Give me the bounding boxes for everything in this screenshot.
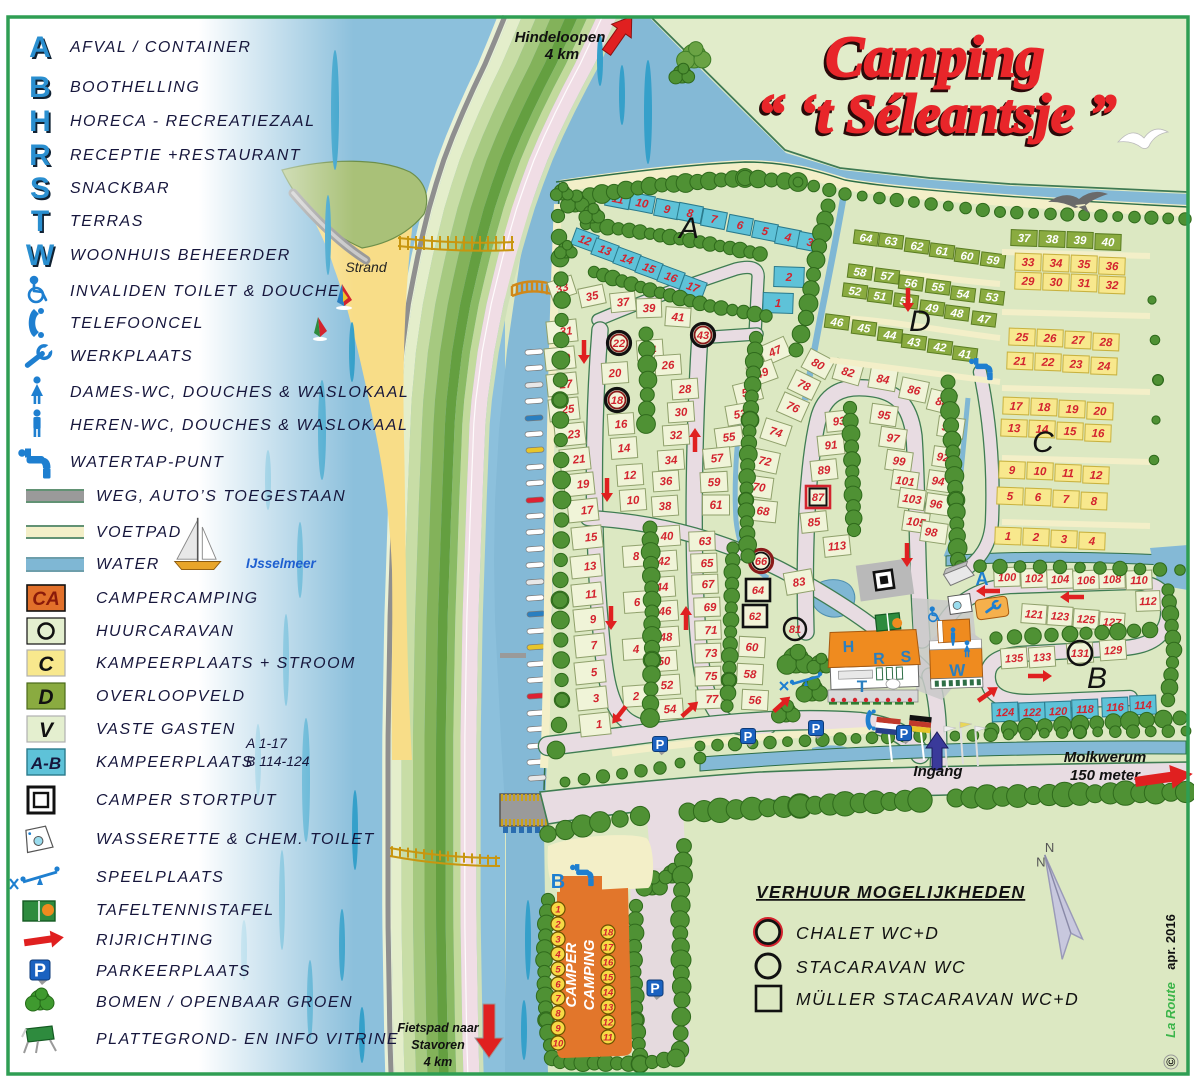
svg-text:29: 29	[1020, 276, 1035, 288]
svg-text:N: N	[1045, 840, 1054, 855]
svg-text:WASSERETTE & CHEM. TOILET: WASSERETTE & CHEM. TOILET	[96, 831, 375, 848]
svg-text:106: 106	[1077, 575, 1097, 588]
svg-text:4: 4	[554, 950, 561, 961]
svg-text:WEG, AUTO’S TOEGESTAAN: WEG, AUTO’S TOEGESTAAN	[96, 488, 346, 505]
svg-text:P: P	[812, 721, 821, 736]
svg-text:135: 135	[1004, 652, 1024, 665]
svg-text:89: 89	[817, 464, 832, 477]
svg-text:PLATTEGROND- EN INFO VITRINE: PLATTEGROND- EN INFO VITRINE	[96, 1031, 399, 1048]
svg-text:PARKEERPLAATS: PARKEERPLAATS	[96, 963, 251, 980]
svg-text:97: 97	[886, 432, 901, 446]
svg-text:CAMPER STORTPUT: CAMPER STORTPUT	[96, 792, 277, 809]
svg-text:56: 56	[748, 695, 762, 708]
svg-text:23: 23	[1068, 359, 1083, 371]
svg-text:18: 18	[611, 395, 624, 407]
svg-text:P: P	[656, 737, 665, 752]
svg-text:8: 8	[555, 1009, 561, 1020]
svg-text:2: 2	[631, 691, 640, 704]
svg-text:10: 10	[626, 495, 640, 508]
svg-text:52: 52	[848, 285, 863, 299]
svg-text:63: 63	[884, 235, 899, 249]
svg-text:VASTE GASTEN: VASTE GASTEN	[96, 721, 236, 738]
svg-text:A: A	[976, 569, 989, 589]
svg-text:Fietspad naar: Fietspad naar	[397, 1021, 479, 1035]
svg-text:62: 62	[910, 240, 925, 254]
svg-text:40: 40	[659, 531, 674, 544]
svg-text:129: 129	[1103, 644, 1123, 657]
svg-text:121: 121	[1024, 608, 1043, 621]
svg-text:P: P	[900, 726, 909, 741]
svg-text:32: 32	[1105, 280, 1119, 292]
svg-text:41: 41	[670, 311, 685, 324]
svg-text:26: 26	[1042, 333, 1057, 345]
svg-text:CAMPING: CAMPING	[581, 939, 598, 1010]
svg-text:24: 24	[1096, 361, 1111, 373]
svg-text:61: 61	[710, 500, 723, 512]
svg-text:S: S	[30, 172, 50, 205]
svg-text:C: C	[1032, 426, 1054, 459]
svg-text:MÜLLER STACARAVAN WC+D: MÜLLER STACARAVAN WC+D	[796, 989, 1079, 1009]
svg-text:WOONHUIS BEHEERDER: WOONHUIS BEHEERDER	[70, 247, 291, 264]
svg-text:11: 11	[603, 1033, 613, 1044]
svg-text:2: 2	[785, 272, 793, 284]
svg-text:7: 7	[1063, 494, 1070, 506]
svg-text:57: 57	[710, 452, 725, 465]
svg-text:110: 110	[1130, 575, 1149, 588]
svg-text:Stavoren: Stavoren	[411, 1038, 465, 1052]
svg-text:4 km: 4 km	[544, 46, 579, 63]
svg-text:13: 13	[1007, 423, 1021, 435]
svg-text:6: 6	[1035, 492, 1042, 504]
svg-text:27: 27	[1070, 335, 1085, 347]
svg-text:125: 125	[1076, 613, 1096, 626]
svg-text:W: W	[949, 661, 967, 681]
svg-text:26: 26	[660, 360, 675, 373]
svg-text:3: 3	[555, 935, 561, 946]
svg-text:57: 57	[880, 270, 895, 284]
svg-text:Ingang: Ingang	[913, 763, 962, 780]
svg-text:1: 1	[555, 905, 560, 916]
svg-text:15: 15	[584, 531, 599, 544]
svg-text:36: 36	[1105, 261, 1119, 273]
svg-text:14: 14	[603, 988, 614, 999]
svg-text:66: 66	[755, 556, 768, 568]
svg-text:43: 43	[906, 336, 922, 350]
svg-text:SNACKBAR: SNACKBAR	[70, 180, 170, 197]
svg-text:B: B	[1087, 662, 1107, 695]
svg-text:18: 18	[603, 928, 614, 939]
svg-text:38: 38	[658, 501, 672, 514]
svg-text:2: 2	[1032, 532, 1040, 544]
svg-text:18: 18	[1037, 402, 1051, 414]
svg-text:114: 114	[1134, 700, 1152, 713]
svg-text:43: 43	[696, 330, 709, 342]
svg-text:40: 40	[1100, 237, 1115, 249]
svg-text:TAFELTENNISTAFEL: TAFELTENNISTAFEL	[96, 902, 275, 919]
svg-text:6: 6	[555, 980, 561, 991]
svg-text:CHALET WC+D: CHALET WC+D	[796, 923, 940, 943]
svg-text:21: 21	[571, 453, 586, 466]
svg-text:60: 60	[745, 642, 759, 655]
svg-text:4: 4	[631, 644, 640, 657]
svg-text:B: B	[29, 71, 51, 104]
svg-text:62: 62	[749, 611, 761, 623]
svg-text:20: 20	[1092, 406, 1107, 418]
svg-text:95: 95	[877, 409, 892, 423]
svg-text:17: 17	[603, 943, 614, 954]
svg-text:25: 25	[1014, 332, 1029, 344]
svg-text:36: 36	[659, 476, 673, 489]
svg-text:N: N	[1036, 855, 1045, 870]
svg-text:64: 64	[752, 585, 764, 597]
svg-text:1: 1	[775, 298, 782, 310]
svg-text:22: 22	[1040, 357, 1055, 369]
svg-text:9: 9	[1009, 465, 1016, 477]
svg-text:B: B	[551, 871, 565, 893]
svg-text:A-B: A-B	[30, 754, 61, 773]
svg-text:13: 13	[603, 1003, 614, 1014]
svg-text:R: R	[873, 651, 886, 668]
svg-text:Molkwerum: Molkwerum	[1064, 749, 1147, 766]
svg-text:D: D	[38, 686, 53, 709]
svg-text:La Route: La Route	[1163, 982, 1178, 1038]
svg-text:21: 21	[1012, 356, 1026, 368]
svg-text:22: 22	[612, 338, 625, 350]
svg-text:8: 8	[1091, 496, 1098, 508]
svg-text:70: 70	[752, 481, 767, 495]
svg-text:BOOTHELLING: BOOTHELLING	[70, 79, 200, 96]
svg-text:10: 10	[1033, 466, 1047, 478]
svg-text:37: 37	[1017, 233, 1031, 245]
svg-text:12: 12	[603, 1018, 614, 1029]
svg-text:CA: CA	[32, 589, 59, 610]
svg-text:99: 99	[892, 455, 907, 469]
svg-text:12: 12	[1089, 470, 1103, 482]
svg-text:37: 37	[616, 296, 631, 309]
svg-text:2: 2	[554, 920, 561, 931]
svg-text:A 1-17: A 1-17	[245, 735, 288, 751]
svg-text:59: 59	[707, 477, 721, 490]
svg-text:CAMPERCAMPING: CAMPERCAMPING	[96, 590, 259, 607]
svg-text:Hindeloopen: Hindeloopen	[515, 29, 606, 46]
svg-text:©: ©	[1164, 1057, 1178, 1066]
svg-text:58: 58	[853, 266, 868, 280]
svg-text:96: 96	[929, 498, 944, 512]
svg-text:BOMEN / OPENBAAR GROEN: BOMEN / OPENBAAR GROEN	[96, 994, 353, 1011]
svg-text:H: H	[842, 639, 854, 656]
svg-text:34: 34	[1049, 258, 1063, 270]
svg-text:59: 59	[986, 254, 1001, 268]
svg-text:INVALIDEN TOILET & DOUCHE: INVALIDEN TOILET & DOUCHE	[70, 283, 340, 300]
svg-text:C: C	[38, 653, 54, 676]
svg-text:20: 20	[607, 368, 622, 381]
svg-text:10: 10	[553, 1039, 564, 1050]
svg-text:11: 11	[585, 588, 598, 601]
svg-text:HEREN-WC, DOUCHES & WASLOKAAL: HEREN-WC, DOUCHES & WASLOKAAL	[70, 417, 408, 434]
svg-text:51: 51	[873, 290, 887, 303]
svg-text:64: 64	[859, 232, 874, 246]
svg-text:68: 68	[756, 505, 771, 518]
svg-text:D: D	[909, 305, 931, 338]
svg-text:11: 11	[1062, 468, 1074, 480]
svg-text:A: A	[29, 31, 51, 64]
svg-text:77: 77	[705, 694, 719, 706]
svg-text:13: 13	[583, 560, 598, 573]
svg-text:38: 38	[1045, 234, 1059, 246]
svg-text:RECEPTIE +RESTAURANT: RECEPTIE +RESTAURANT	[70, 147, 301, 164]
svg-text:T: T	[857, 677, 868, 696]
svg-text:150 meter: 150 meter	[1070, 767, 1141, 784]
svg-text:39: 39	[642, 303, 656, 315]
svg-text:15: 15	[1063, 426, 1077, 438]
svg-text:16: 16	[603, 958, 614, 969]
svg-text:34: 34	[664, 455, 678, 468]
svg-text:IJsselmeer: IJsselmeer	[246, 556, 317, 571]
svg-text:STACARAVAN WC: STACARAVAN WC	[796, 957, 966, 977]
svg-text:RIJRICHTING: RIJRICHTING	[96, 932, 214, 949]
svg-text:31: 31	[1077, 278, 1090, 290]
svg-text:P: P	[34, 960, 46, 980]
svg-text:55: 55	[722, 431, 737, 445]
svg-text:KAMPEERPLAATS + STROOM: KAMPEERPLAATS + STROOM	[96, 655, 356, 672]
svg-text:46: 46	[657, 606, 672, 619]
svg-text:5: 5	[555, 965, 561, 976]
svg-text:T: T	[31, 205, 49, 238]
svg-text:DAMES-WC, DOUCHES & WASLOKAAL: DAMES-WC, DOUCHES & WASLOKAAL	[70, 384, 409, 401]
svg-text:16: 16	[1091, 428, 1105, 440]
svg-text:28: 28	[677, 384, 692, 397]
svg-text:15: 15	[603, 973, 614, 984]
svg-text:AFVAL / CONTAINER: AFVAL / CONTAINER	[69, 39, 251, 56]
svg-text:12: 12	[623, 470, 637, 483]
svg-text:14: 14	[617, 443, 631, 456]
svg-text:3: 3	[1061, 534, 1068, 546]
svg-text:B 114-124: B 114-124	[246, 753, 310, 769]
svg-text:123: 123	[1050, 610, 1069, 623]
svg-text:58: 58	[743, 669, 757, 682]
svg-text:39: 39	[1073, 235, 1087, 247]
svg-text:P: P	[650, 980, 659, 996]
svg-text:19: 19	[576, 478, 591, 491]
svg-text:17: 17	[580, 504, 595, 517]
svg-text:67: 67	[701, 579, 715, 591]
svg-text:87: 87	[812, 492, 825, 504]
svg-text:61: 61	[935, 245, 949, 258]
svg-text:52: 52	[660, 680, 674, 693]
svg-text:S: S	[900, 649, 912, 666]
svg-text:Camping: Camping	[825, 24, 1044, 89]
svg-text:54: 54	[663, 704, 677, 717]
svg-text:1: 1	[1005, 531, 1012, 543]
svg-text:73: 73	[704, 648, 718, 660]
svg-text:W: W	[26, 239, 55, 272]
svg-text:55: 55	[931, 281, 946, 295]
svg-text:63: 63	[698, 536, 712, 548]
svg-text:19: 19	[1065, 404, 1079, 416]
svg-text:118: 118	[1076, 704, 1095, 717]
svg-text:V: V	[39, 719, 55, 742]
svg-text:45: 45	[856, 322, 872, 336]
svg-text:TERRAS: TERRAS	[70, 213, 144, 230]
svg-text:104: 104	[1051, 574, 1070, 587]
svg-text:91: 91	[824, 439, 838, 452]
svg-text:5: 5	[1007, 491, 1014, 503]
svg-text:33: 33	[1021, 257, 1035, 269]
svg-text:HUURCARAVAN: HUURCARAVAN	[96, 623, 234, 640]
svg-text:131: 131	[1071, 648, 1089, 660]
svg-text:54: 54	[956, 288, 971, 302]
svg-text:apr. 2016: apr. 2016	[1163, 914, 1178, 970]
svg-text:32: 32	[669, 430, 683, 443]
svg-text:113: 113	[827, 540, 847, 554]
svg-text:4: 4	[1088, 536, 1096, 548]
svg-text:94: 94	[931, 475, 946, 489]
svg-text:124: 124	[996, 707, 1015, 720]
svg-text:23: 23	[566, 428, 582, 441]
svg-text:17: 17	[1009, 401, 1023, 413]
svg-text:WERKPLAATS: WERKPLAATS	[70, 348, 193, 365]
svg-text:7: 7	[555, 994, 561, 1005]
svg-text:30: 30	[674, 407, 688, 420]
svg-text:H: H	[29, 105, 51, 138]
svg-text:116: 116	[1106, 702, 1125, 715]
svg-text:85: 85	[807, 516, 822, 529]
svg-text:VOETPAD: VOETPAD	[96, 524, 182, 541]
svg-text:30: 30	[1049, 277, 1063, 289]
svg-text:P: P	[744, 729, 753, 744]
svg-text:112: 112	[1139, 596, 1157, 609]
svg-text:SPEELPLAATS: SPEELPLAATS	[96, 869, 224, 886]
svg-text:47: 47	[976, 313, 992, 327]
svg-text:48: 48	[949, 307, 965, 321]
svg-text:VERHUUR MOGELIJKHEDEN: VERHUUR MOGELIJKHEDEN	[756, 882, 1025, 902]
svg-text:71: 71	[704, 625, 717, 637]
svg-text:WATERTAP-PUNT: WATERTAP-PUNT	[70, 454, 224, 471]
svg-text:HORECA - RECREATIEZAAL: HORECA - RECREATIEZAAL	[70, 113, 315, 130]
svg-text:35: 35	[1077, 259, 1091, 271]
svg-text:75: 75	[704, 671, 718, 683]
svg-text:“ ‘t Séleantsje ”: “ ‘t Séleantsje ”	[757, 83, 1116, 144]
svg-text:46: 46	[829, 316, 845, 330]
svg-text:TELEFOONCEL: TELEFOONCEL	[70, 315, 204, 332]
svg-text:R: R	[29, 139, 51, 172]
svg-text:KAMPEERPLAATS: KAMPEERPLAATS	[96, 754, 254, 771]
svg-text:60: 60	[960, 250, 975, 264]
svg-text:98: 98	[924, 526, 939, 540]
svg-text:WATER: WATER	[96, 556, 160, 573]
svg-text:44: 44	[882, 329, 898, 343]
svg-text:133: 133	[1032, 651, 1051, 664]
svg-text:4 km: 4 km	[423, 1055, 453, 1069]
svg-text:1: 1	[595, 719, 603, 732]
svg-text:122: 122	[1023, 707, 1042, 720]
svg-text:28: 28	[1098, 337, 1113, 349]
svg-text:42: 42	[932, 341, 948, 355]
svg-text:81: 81	[789, 624, 801, 636]
svg-text:102: 102	[1025, 573, 1044, 586]
svg-text:53: 53	[985, 291, 1000, 305]
svg-text:16: 16	[614, 419, 628, 432]
svg-text:65: 65	[700, 558, 714, 570]
svg-text:69: 69	[703, 602, 717, 614]
svg-text:OVERLOOPVELD: OVERLOOPVELD	[96, 688, 246, 705]
svg-text:A: A	[677, 212, 699, 245]
svg-text:9: 9	[555, 1024, 561, 1035]
